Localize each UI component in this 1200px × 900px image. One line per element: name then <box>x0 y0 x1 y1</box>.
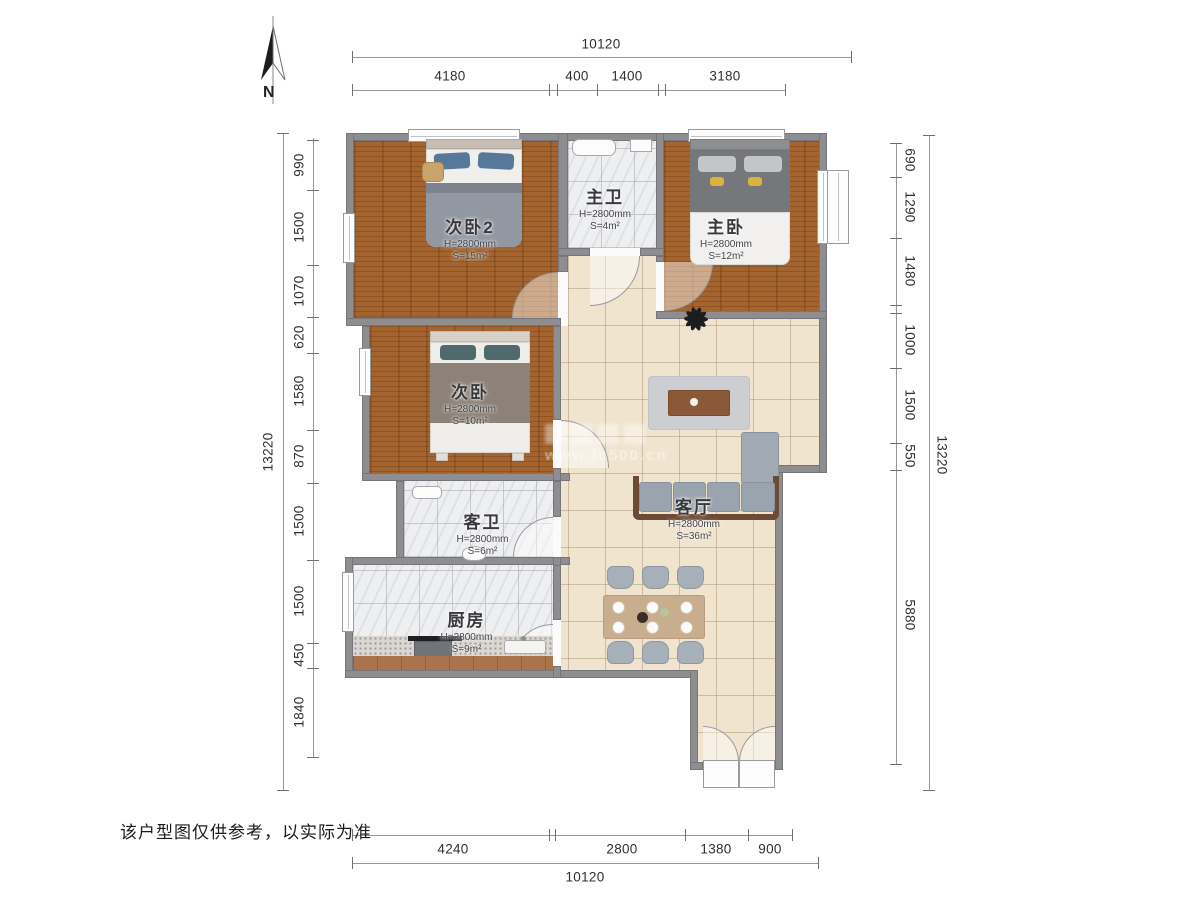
dim-line <box>352 863 818 864</box>
bed-foot <box>436 453 448 461</box>
wall <box>346 318 561 326</box>
dim-tick <box>923 135 935 136</box>
watermark-url: www.fc500.cn <box>545 447 668 464</box>
dim-label: 1000 <box>903 324 918 355</box>
room-area: S=6m² <box>420 546 545 557</box>
dim-tick <box>818 857 819 869</box>
dining-chair <box>607 641 634 664</box>
room-height: H=2800mm <box>420 534 545 545</box>
dim-tick <box>890 177 902 178</box>
dim-tick <box>549 84 550 96</box>
room-name: 次卧2 <box>400 213 540 238</box>
dim-tick <box>307 430 319 431</box>
table-decor <box>690 398 698 406</box>
wall <box>553 565 561 620</box>
wall <box>558 248 590 256</box>
bed-blanket-fold <box>426 183 522 193</box>
dining-table <box>603 595 705 639</box>
wall <box>558 256 568 272</box>
dim-line <box>352 57 851 58</box>
dim-tick <box>923 790 935 791</box>
pillow <box>478 152 515 170</box>
dim-tick <box>307 668 319 669</box>
door-opening <box>656 262 664 311</box>
dim-tick <box>307 643 319 644</box>
dim-tick <box>307 483 319 484</box>
dim-label: 990 <box>292 153 307 176</box>
dining-chair <box>677 641 704 664</box>
dim-label: 1500 <box>292 505 307 536</box>
bed-headboard <box>690 139 790 150</box>
pillow <box>698 156 736 172</box>
room-name: 次卧 <box>410 378 530 403</box>
plate <box>612 601 625 614</box>
dim-tick <box>307 190 319 191</box>
plate <box>646 601 659 614</box>
pillow <box>440 345 476 360</box>
dim-tick <box>890 305 902 306</box>
dim-label: 620 <box>292 325 307 348</box>
dim-tick <box>307 757 319 758</box>
floor-plan-page: N <box>0 0 1200 900</box>
dim-tick <box>851 51 852 63</box>
dim-line <box>313 138 314 758</box>
plate <box>646 621 659 634</box>
dim-tick <box>352 857 353 869</box>
wall <box>553 326 561 420</box>
wall <box>553 666 561 678</box>
wall <box>640 248 664 256</box>
dim-line <box>352 835 792 836</box>
room-height: H=2800mm <box>634 519 754 530</box>
dim-tick <box>307 353 319 354</box>
dim-tick <box>665 84 666 96</box>
watermark: www.fc500.cn <box>545 424 668 464</box>
dim-tick <box>352 84 353 96</box>
plate <box>680 601 693 614</box>
dim-tick <box>890 368 902 369</box>
dim-label: 450 <box>292 643 307 666</box>
dim-tick <box>307 317 319 318</box>
pillow <box>744 156 782 172</box>
dim-tick <box>555 829 556 841</box>
door-opening <box>553 517 561 557</box>
bath-shelf <box>630 139 652 152</box>
room-name: 主卧 <box>666 213 786 238</box>
dim-tick <box>597 84 598 96</box>
wall <box>396 481 404 565</box>
room-name: 厨房 <box>400 606 533 631</box>
room-name: 客卫 <box>420 508 545 533</box>
wall <box>690 670 698 770</box>
dim-label: 900 <box>758 842 781 857</box>
dim-line <box>896 143 897 764</box>
dim-label: 3180 <box>709 69 740 84</box>
table-flower <box>660 608 669 617</box>
dim-label: 2800 <box>606 842 637 857</box>
dim-label: 1400 <box>611 69 642 84</box>
room-label-kitchen: 厨房 H=2800mm S=9m² <box>400 606 533 655</box>
room-name: 客厅 <box>634 493 754 518</box>
table-centerpiece <box>637 612 648 623</box>
wall <box>553 481 561 517</box>
bedroom2-chair <box>422 162 444 182</box>
window <box>343 213 355 263</box>
dim-line <box>283 133 284 790</box>
entry-door-leaf <box>739 760 775 788</box>
dim-label: 1070 <box>292 275 307 306</box>
dim-tick <box>890 443 902 444</box>
ceiling-fan-icon <box>674 304 718 334</box>
dim-label: 1290 <box>903 191 918 222</box>
entry-door-leaf <box>703 760 739 788</box>
dim-label: 13220 <box>261 432 276 471</box>
dim-tick <box>557 84 558 96</box>
bay-window <box>827 170 849 244</box>
door-opening <box>590 248 640 256</box>
room-label-master-bedroom: 主卧 H=2800mm S=12m² <box>666 213 786 262</box>
dim-tick <box>890 470 902 471</box>
dim-label: 4180 <box>434 69 465 84</box>
room-label-master-bath: 主卫 H=2800mm S=4m² <box>560 183 650 232</box>
dim-tick <box>307 265 319 266</box>
dim-tick <box>685 829 686 841</box>
cushion <box>710 177 724 186</box>
plate <box>680 621 693 634</box>
room-area: S=15m² <box>400 251 540 262</box>
bathtub <box>572 139 616 156</box>
wall <box>656 133 664 256</box>
dim-tick <box>785 84 786 96</box>
dim-tick <box>890 238 902 239</box>
kitchen-sill <box>353 656 553 670</box>
room-height: H=2800mm <box>400 239 540 250</box>
dim-label: 10120 <box>565 870 604 885</box>
room-height: H=2800mm <box>400 632 533 643</box>
wall <box>690 762 703 770</box>
dim-tick <box>658 84 659 96</box>
coffee-table <box>668 390 730 416</box>
dim-line <box>929 135 930 790</box>
dim-line <box>352 90 785 91</box>
dim-tick <box>352 51 353 63</box>
dining-chair <box>677 566 704 589</box>
north-label: N <box>263 84 275 102</box>
dim-label: 5880 <box>903 599 918 630</box>
dining-chair <box>642 641 669 664</box>
dim-label: 870 <box>292 444 307 467</box>
room-area: S=4m² <box>560 221 650 232</box>
wall <box>345 670 698 678</box>
dim-label: 1500 <box>903 389 918 420</box>
cushion <box>748 177 762 186</box>
room-label-living: 客厅 H=2800mm S=36m² <box>634 493 754 542</box>
dim-tick <box>890 764 902 765</box>
plate <box>612 621 625 634</box>
window <box>342 572 354 632</box>
room-height: H=2800mm <box>666 239 786 250</box>
door-opening <box>553 620 561 666</box>
dim-label: 690 <box>903 148 918 171</box>
room-area: S=36m² <box>634 531 754 542</box>
dining-chair <box>642 566 669 589</box>
dim-label: 10120 <box>581 37 620 52</box>
wall <box>345 557 570 565</box>
room-height: H=2800mm <box>410 404 530 415</box>
room-area: S=9m² <box>400 644 533 655</box>
pillow <box>484 345 520 360</box>
room-height: H=2800mm <box>560 209 650 220</box>
room-area: S=12m² <box>666 251 786 262</box>
dining-chair <box>607 566 634 589</box>
dim-label: 1500 <box>292 585 307 616</box>
bed-headboard <box>430 331 530 342</box>
wall <box>362 473 570 481</box>
dim-tick <box>307 140 319 141</box>
dim-tick <box>277 133 289 134</box>
room-area: S=10m² <box>410 416 530 427</box>
dim-label: 1500 <box>292 211 307 242</box>
washbasin <box>412 486 442 499</box>
dim-label: 13220 <box>935 435 950 474</box>
dim-label: 1380 <box>700 842 731 857</box>
dim-label: 550 <box>903 444 918 467</box>
door-opening <box>558 272 568 318</box>
dim-tick <box>890 313 902 314</box>
dim-label: 1840 <box>292 696 307 727</box>
dim-label: 1480 <box>903 255 918 286</box>
bed-foot <box>512 453 524 461</box>
disclaimer-text: 该户型图仅供参考，以实际为准 <box>120 818 372 843</box>
dim-label: 1580 <box>292 375 307 406</box>
wall <box>553 468 561 481</box>
bed-headboard <box>426 139 522 149</box>
room-label-bedroom: 次卧 H=2800mm S=10m² <box>410 378 530 427</box>
dim-tick <box>277 790 289 791</box>
room-label-bedroom2: 次卧2 H=2800mm S=15m² <box>400 213 540 262</box>
dim-tick <box>792 829 793 841</box>
dim-label: 400 <box>565 69 588 84</box>
dim-tick <box>748 829 749 841</box>
dim-tick <box>890 143 902 144</box>
window <box>359 348 371 396</box>
dim-label: 4240 <box>437 842 468 857</box>
dim-tick <box>307 560 319 561</box>
watermark-logo <box>545 424 668 444</box>
room-label-guest-bath: 客卫 H=2800mm S=6m² <box>420 508 545 557</box>
dim-tick <box>549 829 550 841</box>
room-name: 主卫 <box>560 183 650 208</box>
